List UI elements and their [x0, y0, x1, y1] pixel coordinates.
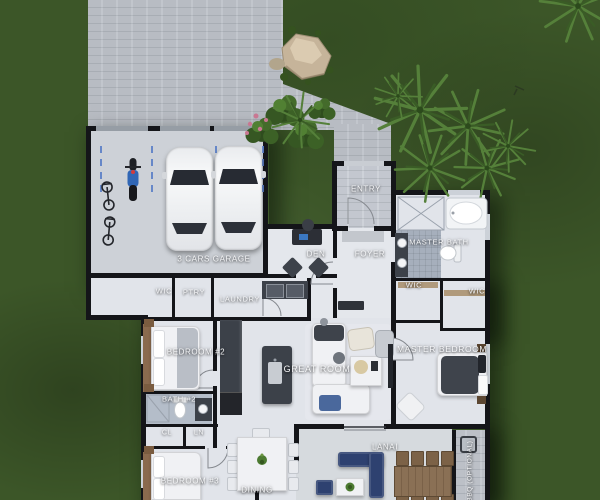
room-label-wic-hall: WIC	[156, 287, 172, 296]
room-label-entry: ENTRY	[351, 185, 381, 194]
room-label-pantry: PTRY	[183, 288, 205, 297]
room-label-garage: 3 CARS GARAGE	[177, 255, 250, 264]
room-label-lanai: LANAI	[372, 443, 398, 452]
room-label-great-room: GREAT ROOM	[284, 364, 351, 374]
room-label-foyer: FOYER	[355, 250, 386, 259]
room-label-den: DEN	[307, 250, 326, 259]
room-label-bath-2: BATH #2	[162, 395, 196, 404]
room-labels: 3 CARS GARAGEWICPTRYLAUNDRYENTRYFOYERDEN…	[0, 0, 600, 500]
room-label-bedroom-3: BEDROOM #3	[161, 477, 219, 486]
room-label-master-bedroom: MASTER BEDROOM	[397, 344, 487, 354]
room-label-linen: LN	[194, 430, 204, 437]
room-label-wic-master-1: WIC	[406, 281, 422, 290]
room-label-wic-master-2: WIC	[469, 287, 485, 296]
room-label-bedroom-2: BEDROOM #2	[167, 348, 225, 357]
room-label-master-bath: MASTER BATH	[409, 238, 468, 247]
room-label-bbq: BBQ (OPTIONAL)	[467, 440, 474, 500]
floor-plan-scene: 3 CARS GARAGEWICPTRYLAUNDRYENTRYFOYERDEN…	[0, 0, 600, 500]
room-label-laundry: LAUNDRY	[220, 295, 260, 304]
room-label-closet: CL	[162, 430, 172, 437]
room-label-dining: DINING	[241, 486, 273, 495]
